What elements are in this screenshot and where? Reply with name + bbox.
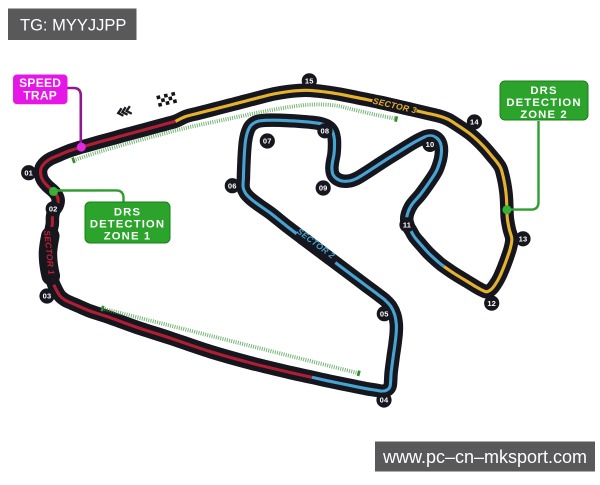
svg-text:08: 08 — [321, 127, 330, 136]
svg-text:09: 09 — [319, 184, 328, 193]
svg-text:14: 14 — [470, 118, 479, 127]
svg-text:10: 10 — [426, 140, 435, 149]
svg-text:06: 06 — [228, 181, 237, 190]
svg-text:07: 07 — [263, 137, 272, 146]
svg-text:13: 13 — [519, 235, 528, 244]
svg-text:DETECTION: DETECTION — [506, 97, 581, 109]
svg-text:ZONE 2: ZONE 2 — [520, 109, 567, 121]
svg-text:DRS: DRS — [114, 207, 141, 219]
svg-text:01: 01 — [24, 168, 33, 177]
svg-text:04: 04 — [380, 396, 389, 405]
svg-text:ZONE 1: ZONE 1 — [104, 231, 151, 243]
svg-text:TRAP: TRAP — [23, 88, 57, 102]
svg-text:05: 05 — [380, 309, 389, 318]
svg-text:www.pc–cn–mksport.com: www.pc–cn–mksport.com — [382, 447, 587, 467]
svg-text:12: 12 — [487, 299, 496, 308]
svg-text:TG: MYYJJPP: TG: MYYJJPP — [20, 17, 126, 35]
svg-text:DRS: DRS — [530, 85, 557, 97]
svg-text:DETECTION: DETECTION — [90, 219, 165, 231]
svg-text:15: 15 — [305, 77, 314, 86]
svg-text:11: 11 — [403, 221, 411, 230]
svg-text:02: 02 — [49, 205, 58, 214]
svg-text:03: 03 — [43, 292, 52, 301]
